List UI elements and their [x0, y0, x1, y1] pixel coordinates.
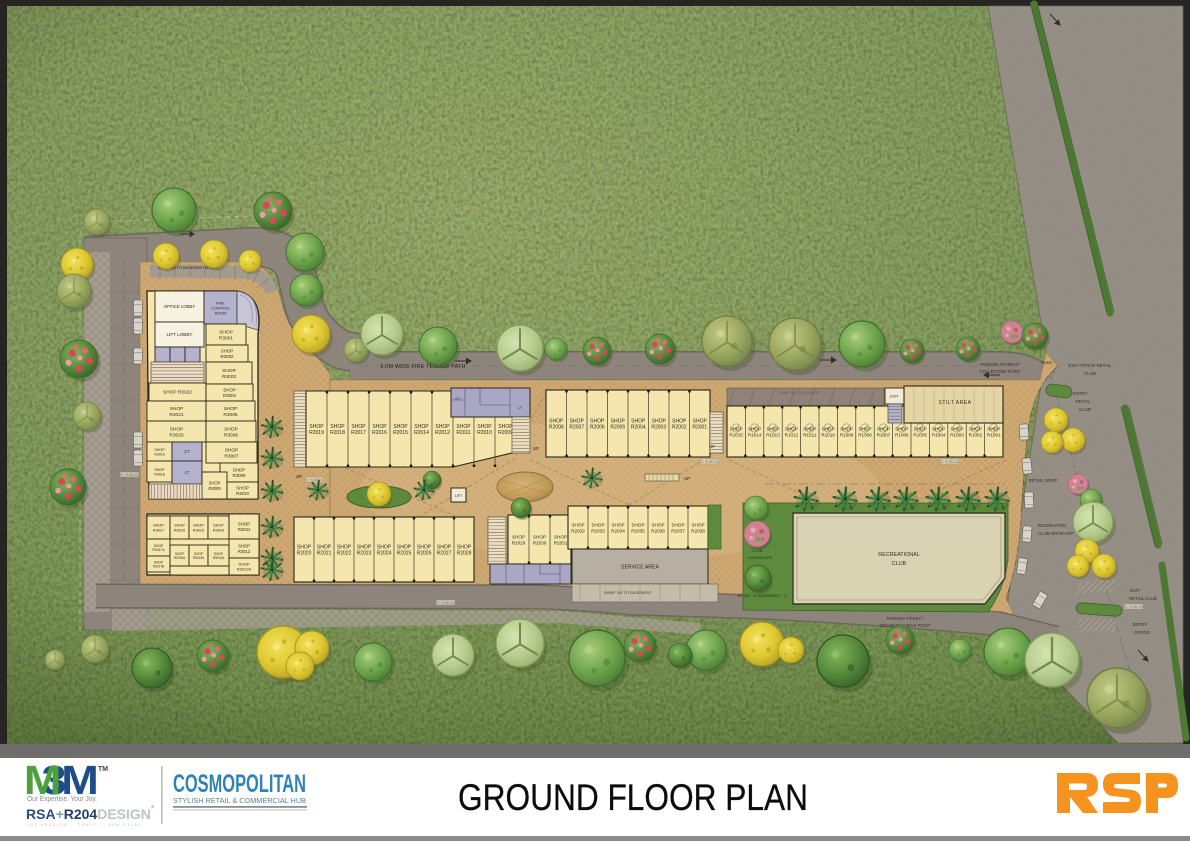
svg-text:R3015A: R3015A [193, 556, 205, 560]
svg-text:R2025: R2025 [397, 551, 412, 557]
svg-text:R2020: R2020 [297, 551, 312, 557]
svg-text:FIRE: FIRE [216, 302, 225, 306]
svg-text:®: ® [151, 804, 154, 809]
svg-text:COLLECTION POINT: COLLECTION POINT [980, 369, 1021, 374]
svg-text:CONTROL: CONTROL [211, 306, 230, 310]
svg-text:LT: LT [518, 406, 523, 410]
svg-text:EXIT OFFICE RETAIL: EXIT OFFICE RETAIL [1068, 363, 1112, 368]
svg-text:FL +0.85 LVL: FL +0.85 LVL [1124, 605, 1143, 609]
svg-text:R1011: R1011 [803, 433, 817, 438]
svg-text:STILT AREA: STILT AREA [939, 400, 972, 406]
svg-text:SHOP: SHOP [611, 419, 626, 425]
svg-text:FL +0.85 LVL: FL +0.85 LVL [120, 473, 139, 477]
svg-text:LIFT: LIFT [455, 494, 463, 498]
svg-text:CT: CT [184, 449, 190, 454]
svg-text:RECREATION: RECREATION [1038, 523, 1066, 528]
svg-text:SHOP: SHOP [693, 419, 708, 425]
svg-text:R3010: R3010 [236, 491, 249, 496]
svg-text:SHOP: SHOP [154, 468, 165, 472]
svg-text:R1013: R1013 [766, 433, 780, 438]
svg-text:SHOP: SHOP [877, 427, 890, 432]
svg-text:UP: UP [684, 476, 690, 481]
svg-text:SHOP: SHOP [611, 523, 624, 528]
svg-text:SHOP: SHOP [766, 427, 779, 432]
svg-text:SHOP: SHOP [590, 419, 605, 425]
svg-text:R3016: R3016 [174, 529, 185, 533]
svg-text:R3006: R3006 [224, 432, 238, 438]
svg-text:SHOP: SHOP [858, 427, 871, 432]
svg-text:FL +0.85 LVL: FL +0.85 LVL [305, 478, 324, 482]
svg-text:R3020: R3020 [169, 432, 183, 438]
svg-text:SHOP: SHOP [671, 523, 684, 528]
svg-text:SHOP: SHOP [498, 424, 513, 430]
svg-text:SHOP: SHOP [570, 419, 585, 425]
svg-text:R1009: R1009 [840, 433, 854, 438]
svg-text:R3012A: R3012A [237, 567, 252, 572]
svg-text:COSMOPOLITAN: COSMOPOLITAN [173, 770, 306, 798]
svg-text:RAMP ON TO BASEMENT: RAMP ON TO BASEMENT [780, 391, 821, 395]
svg-text:SHOP: SHOP [512, 535, 525, 540]
svg-text:SHOP: SHOP [222, 368, 236, 374]
svg-text:FL +0.85 LVL: FL +0.85 LVL [940, 460, 959, 464]
svg-text:SHOP: SHOP [456, 424, 471, 430]
svg-text:R3008: R3008 [208, 486, 221, 491]
svg-text:STYLISH RETAIL & COMMERCIAL HU: STYLISH RETAIL & COMMERCIAL HUB [173, 796, 306, 805]
svg-text:SHOP: SHOP [224, 427, 238, 433]
svg-text:SHOP: SHOP [377, 545, 392, 551]
svg-text:PARKING PAYMENT: PARKING PAYMENT [980, 362, 1020, 367]
svg-text:LIFT LOBBY: LIFT LOBBY [167, 332, 193, 337]
svg-text:SHOP: SHOP [238, 522, 251, 527]
svg-text:RETAIL CLUB: RETAIL CLUB [1129, 596, 1157, 601]
svg-text:R3018: R3018 [154, 472, 165, 476]
svg-text:CLUB: CLUB [1079, 407, 1091, 412]
svg-text:R2031: R2031 [554, 541, 568, 546]
svg-text:SHOP: SHOP [236, 486, 249, 491]
svg-text:6.0M WIDE FIRE TENDER PATH: 6.0M WIDE FIRE TENDER PATH [380, 364, 465, 370]
svg-text:SHOP: SHOP [631, 419, 646, 425]
svg-text:SHOP: SHOP [309, 424, 324, 430]
svg-text:SHOP: SHOP [987, 427, 1000, 432]
svg-text:R3011: R3011 [238, 527, 251, 532]
svg-text:R3003: R3003 [222, 374, 236, 380]
svg-text:R3004: R3004 [223, 393, 236, 398]
svg-text:CLUB DROP-OFF: CLUB DROP-OFF [1038, 531, 1074, 536]
svg-text:UP: UP [533, 446, 539, 451]
svg-text:R3014: R3014 [213, 529, 224, 533]
svg-text:SHOP: SHOP [785, 427, 798, 432]
svg-text:R3014A: R3014A [213, 556, 225, 560]
svg-text:R1004: R1004 [932, 433, 946, 438]
svg-text:R2002: R2002 [672, 425, 687, 431]
svg-text:R3019: R3019 [154, 452, 165, 456]
svg-text:SHOP: SHOP [914, 427, 927, 432]
svg-text:SHOP: SHOP [297, 545, 312, 551]
svg-text:R3016A: R3016A [174, 556, 186, 560]
svg-text:SHOP: SHOP [533, 535, 546, 540]
svg-text:SERVICE AREA: SERVICE AREA [621, 564, 660, 570]
svg-text:LANDSCAPE: LANDSCAPE [748, 555, 773, 560]
svg-text:SHOP: SHOP [213, 524, 224, 528]
svg-text:SHOP: SHOP [170, 406, 184, 412]
svg-text:SHOP: SHOP [932, 427, 945, 432]
svg-text:R2018: R2018 [330, 430, 345, 436]
svg-text:R3009: R3009 [233, 473, 246, 478]
svg-text:SHOP: SHOP [435, 424, 450, 430]
svg-text:FL +0.85 LVL: FL +0.85 LVL [700, 460, 719, 464]
svg-text:R2038: R2038 [691, 529, 705, 534]
svg-text:SHOP: SHOP [691, 523, 704, 528]
svg-text:SHOP: SHOP [950, 427, 963, 432]
svg-text:GT: GT [455, 397, 461, 401]
svg-text:R3015: R3015 [193, 529, 204, 533]
svg-text:SHOP: SHOP [631, 523, 644, 528]
svg-text:R1014: R1014 [748, 433, 762, 438]
svg-text:ROOM: ROOM [215, 311, 227, 315]
svg-text:SHOP: SHOP [219, 330, 233, 336]
svg-text:R2027: R2027 [437, 551, 452, 557]
svg-text:R2010: R2010 [477, 430, 492, 436]
svg-text:SHOP: SHOP [170, 427, 184, 433]
svg-text:R1002: R1002 [969, 433, 983, 438]
svg-text:R2015: R2015 [393, 430, 408, 436]
svg-text:SHOP: SHOP [223, 388, 236, 393]
svg-text:SHOP: SHOP [672, 419, 687, 425]
svg-text:SHOP: SHOP [571, 523, 584, 528]
svg-text:R2029: R2029 [512, 541, 526, 546]
svg-text:R2008: R2008 [549, 425, 564, 431]
svg-text:OFFICE: OFFICE [1134, 630, 1150, 635]
svg-text:SHOP: SHOP [803, 427, 816, 432]
svg-text:R2022: R2022 [337, 551, 352, 557]
svg-text:R2009: R2009 [498, 430, 513, 436]
svg-text:R3007: R3007 [224, 453, 238, 459]
svg-text:SHOP: SHOP [153, 524, 164, 528]
svg-text:FL +0.85 LVL: FL +0.85 LVL [436, 601, 455, 605]
svg-text:R2016: R2016 [372, 430, 387, 436]
svg-text:R3001: R3001 [219, 335, 233, 341]
svg-text:SHOP: SHOP [317, 545, 332, 551]
svg-text:R2036: R2036 [651, 529, 665, 534]
svg-text:SHOP: SHOP [652, 419, 667, 425]
svg-text:SHOP: SHOP [357, 545, 372, 551]
svg-text:SHOP: SHOP [154, 448, 165, 452]
svg-text:R3021: R3021 [169, 412, 183, 418]
svg-text:R2032: R2032 [571, 529, 585, 534]
svg-text:R3017: R3017 [153, 529, 164, 533]
svg-text:R3017A: R3017A [152, 548, 165, 552]
svg-text:SHOP: SHOP [351, 424, 366, 430]
svg-text:ENTRY: ENTRY [1133, 622, 1148, 627]
svg-text:R3002: R3002 [221, 354, 234, 359]
svg-text:R2026: R2026 [417, 551, 432, 557]
svg-text:Our Expertise. Your Joy.: Our Expertise. Your Joy. [27, 794, 97, 803]
svg-text:CLUB: CLUB [1084, 371, 1096, 376]
svg-text:SHOP: SHOP [554, 535, 567, 540]
svg-text:SHOP: SHOP [417, 545, 432, 551]
svg-text:ENTRY: ENTRY [1073, 391, 1088, 396]
svg-text:R2012: R2012 [435, 430, 450, 436]
svg-text:R3005: R3005 [223, 412, 237, 418]
svg-text:SHOP: SHOP [174, 524, 185, 528]
svg-text:SHOP: SHOP [193, 524, 204, 528]
svg-text:R2011: R2011 [456, 430, 471, 436]
svg-text:SHOP: SHOP [437, 545, 452, 551]
svg-text:R1015: R1015 [729, 433, 743, 438]
svg-text:R1006: R1006 [895, 433, 909, 438]
svg-text:SHOP: SHOP [477, 424, 492, 430]
svg-text:SHOP: SHOP [224, 406, 238, 412]
svg-text:SHOP: SHOP [591, 523, 604, 528]
svg-text:R2019: R2019 [309, 430, 324, 436]
svg-text:R3017B: R3017B [153, 565, 165, 569]
svg-text:R2030: R2030 [533, 541, 547, 546]
svg-text:EXIT: EXIT [1130, 588, 1140, 593]
svg-text:R2014: R2014 [414, 430, 429, 436]
svg-text:SHOP: SHOP [822, 427, 835, 432]
svg-text:SHOP: SHOP [225, 448, 239, 454]
svg-text:R1003: R1003 [950, 433, 964, 438]
svg-text:R2023: R2023 [357, 551, 372, 557]
svg-text:SHOP: SHOP [393, 424, 408, 430]
svg-text:SHOP: SHOP [895, 427, 908, 432]
svg-text:SHOP: SHOP [730, 427, 743, 432]
svg-text:R2024: R2024 [377, 551, 392, 557]
svg-text:SHOP: SHOP [337, 545, 352, 551]
svg-text:SHOP: SHOP [969, 427, 982, 432]
svg-text:R1001: R1001 [987, 433, 1001, 438]
svg-text:R1005: R1005 [913, 433, 927, 438]
svg-text:SHOP: SHOP [457, 545, 472, 551]
svg-text:R2006: R2006 [590, 425, 605, 431]
svg-text:SHOP: SHOP [330, 424, 345, 430]
svg-text:R2003: R2003 [651, 425, 666, 431]
svg-text:RAMP DN TO BASEMENT: RAMP DN TO BASEMENT [604, 590, 653, 595]
svg-text:SHOP: SHOP [840, 427, 853, 432]
svg-text:R1008: R1008 [858, 433, 872, 438]
svg-text:R2005: R2005 [610, 425, 625, 431]
svg-text:UP: UP [296, 474, 302, 479]
svg-text:GROUND FLOOR PLAN: GROUND FLOOR PLAN [458, 777, 808, 818]
svg-text:R2033: R2033 [591, 529, 605, 534]
svg-text:OFFICE LOBBY: OFFICE LOBBY [164, 304, 195, 309]
svg-text:R2004: R2004 [631, 425, 646, 431]
svg-text:SHOP: SHOP [221, 349, 234, 354]
svg-text:SHOP: SHOP [372, 424, 387, 430]
svg-text:RETAIL: RETAIL [1075, 399, 1091, 404]
svg-text:TM: TM [98, 766, 108, 773]
svg-text:EXIT: EXIT [890, 394, 899, 398]
svg-text:SHOP: SHOP [549, 419, 564, 425]
svg-text:LOS ANGELES TOKYO NEW DE: LOS ANGELES TOKYO NEW DELHI [27, 823, 142, 827]
svg-text:LT: LT [185, 470, 190, 475]
svg-text:R2028: R2028 [457, 551, 472, 557]
svg-text:SHOP: SHOP [414, 424, 429, 430]
svg-text:RECREATIONAL: RECREATIONAL [878, 552, 920, 558]
svg-text:R2037: R2037 [671, 529, 685, 534]
svg-text:R2021: R2021 [317, 551, 332, 557]
svg-text:RAMP: RAMP [1042, 361, 1053, 365]
svg-text:RSA+R204DESIGN: RSA+R204DESIGN [26, 806, 151, 822]
svg-text:CLUB: CLUB [892, 561, 907, 567]
svg-text:R2034: R2034 [611, 529, 625, 534]
svg-text:SHOP R3022: SHOP R3022 [163, 390, 192, 396]
svg-text:SHOP: SHOP [651, 523, 664, 528]
svg-text:UP: UP [709, 444, 715, 449]
svg-text:R1012: R1012 [785, 433, 799, 438]
svg-text:R1010: R1010 [821, 433, 835, 438]
svg-text:R2035: R2035 [631, 529, 645, 534]
svg-text:SHOP: SHOP [397, 545, 412, 551]
svg-text:R2007: R2007 [569, 425, 584, 431]
svg-text:SHOP: SHOP [154, 544, 164, 548]
svg-text:R1007: R1007 [877, 433, 891, 438]
svg-text:PARKING TICKET /: PARKING TICKET / [887, 616, 925, 621]
svg-text:R3012: R3012 [238, 549, 251, 554]
svg-text:SHOP: SHOP [748, 427, 761, 432]
svg-text:RETAIL DROP: RETAIL DROP [1029, 478, 1058, 483]
svg-text:ENTRY TO BASEMENT - 1: ENTRY TO BASEMENT - 1 [738, 593, 788, 598]
svg-text:R2001: R2001 [692, 425, 707, 431]
svg-text:SHOP: SHOP [233, 468, 246, 473]
svg-text:R2017: R2017 [351, 430, 366, 436]
